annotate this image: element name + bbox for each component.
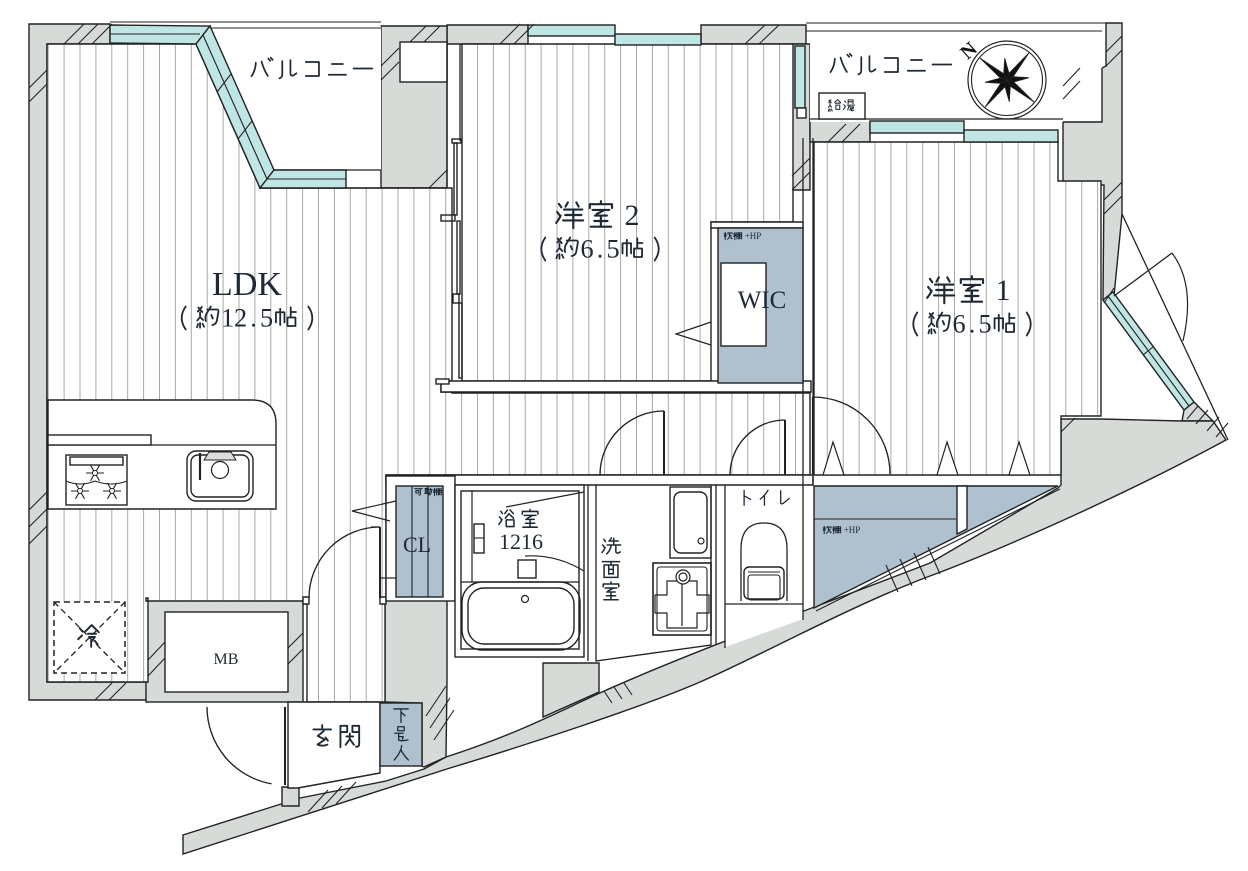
svg-text:+HP: +HP	[844, 525, 861, 535]
svg-text:2: 2	[234, 303, 247, 332]
svg-text:WIC: WIC	[738, 287, 787, 314]
svg-text:6: 6	[580, 234, 593, 263]
svg-text:LDK: LDK	[212, 266, 282, 303]
svg-text:1: 1	[221, 303, 234, 332]
svg-text:2: 2	[625, 199, 640, 232]
svg-text:5: 5	[260, 303, 273, 332]
svg-text:1: 1	[996, 274, 1011, 307]
svg-text:+HP: +HP	[745, 231, 762, 241]
svg-text:6: 6	[952, 309, 965, 338]
svg-text:1216: 1216	[499, 529, 543, 554]
svg-text:.: .	[597, 234, 604, 263]
svg-text:CL: CL	[403, 532, 431, 557]
svg-text:5: 5	[978, 309, 991, 338]
svg-text:MB: MB	[214, 651, 239, 668]
svg-text:.: .	[969, 309, 976, 338]
svg-text:.: .	[250, 303, 257, 332]
svg-text:5: 5	[606, 234, 619, 263]
